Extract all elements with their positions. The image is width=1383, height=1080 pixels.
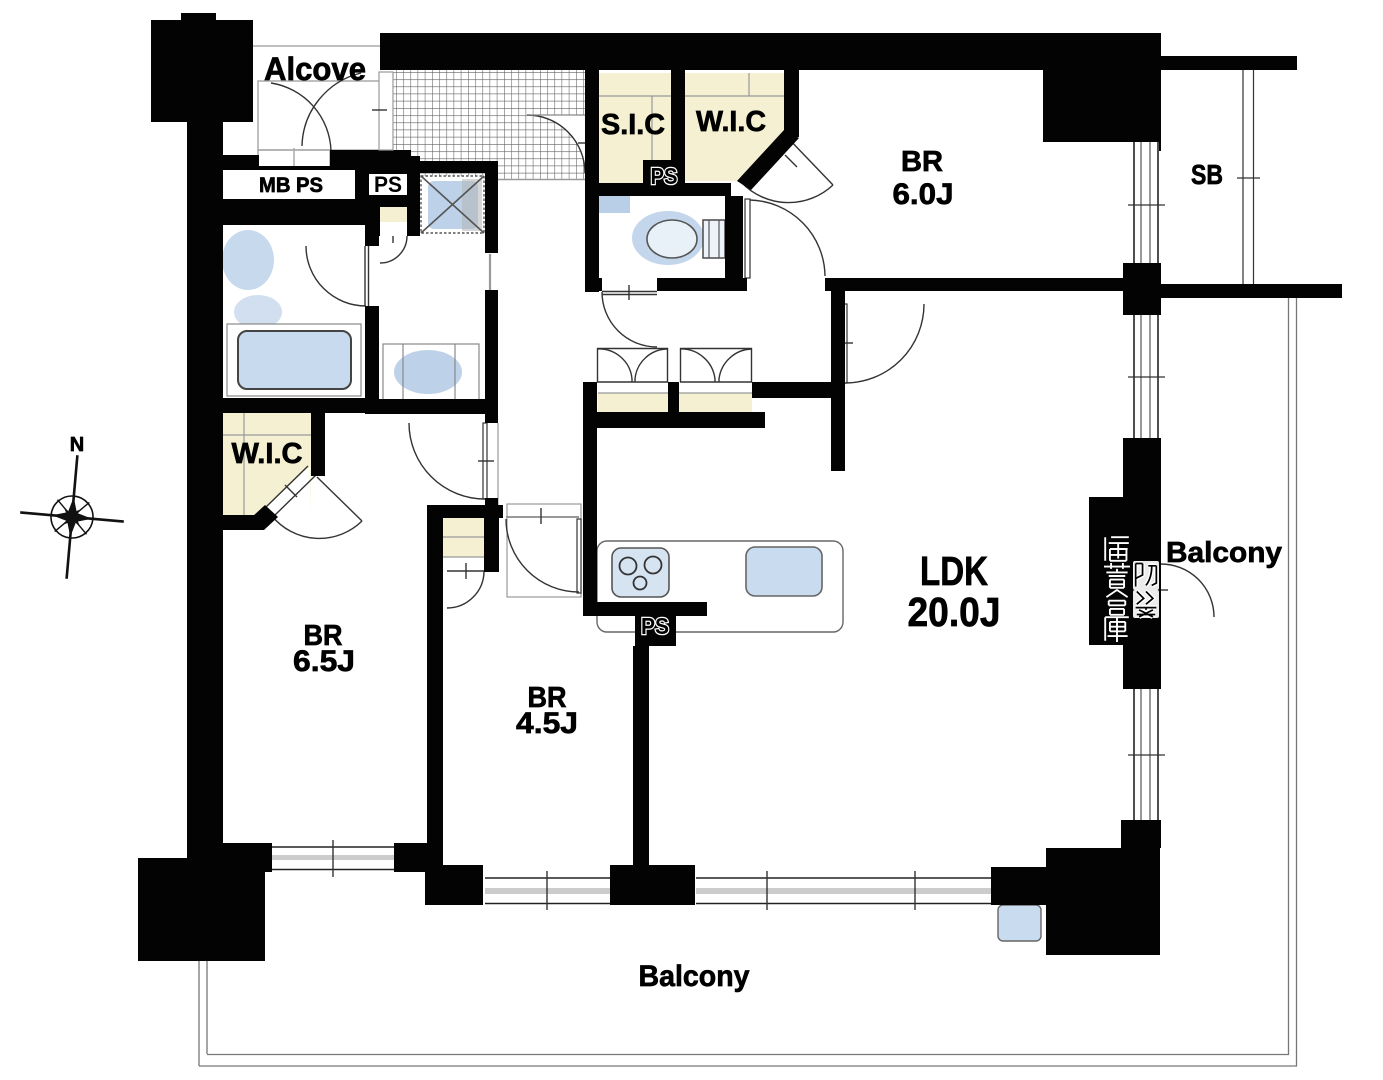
svg-text:PS: PS	[374, 172, 402, 197]
svg-text:Balcony: Balcony	[1166, 537, 1282, 569]
svg-text:W.I.C: W.I.C	[696, 106, 766, 138]
svg-text:6.5J: 6.5J	[293, 645, 355, 678]
svg-text:Balcony: Balcony	[639, 960, 750, 993]
svg-text:Alcove: Alcove	[264, 51, 366, 87]
svg-text:N: N	[70, 434, 84, 456]
svg-text:LDK: LDK	[920, 548, 988, 594]
svg-text:4.5J: 4.5J	[516, 707, 578, 740]
svg-text:SB: SB	[1191, 159, 1223, 190]
svg-text:MB PS: MB PS	[259, 174, 323, 197]
svg-text:W.I.C: W.I.C	[232, 438, 303, 470]
svg-text:6.0J: 6.0J	[893, 178, 954, 211]
svg-text:PS: PS	[641, 613, 669, 639]
svg-text:S.I.C: S.I.C	[601, 109, 665, 141]
svg-text:BR: BR	[901, 146, 943, 178]
svg-text:PS: PS	[651, 163, 678, 189]
svg-text:20.0J: 20.0J	[908, 589, 1001, 635]
